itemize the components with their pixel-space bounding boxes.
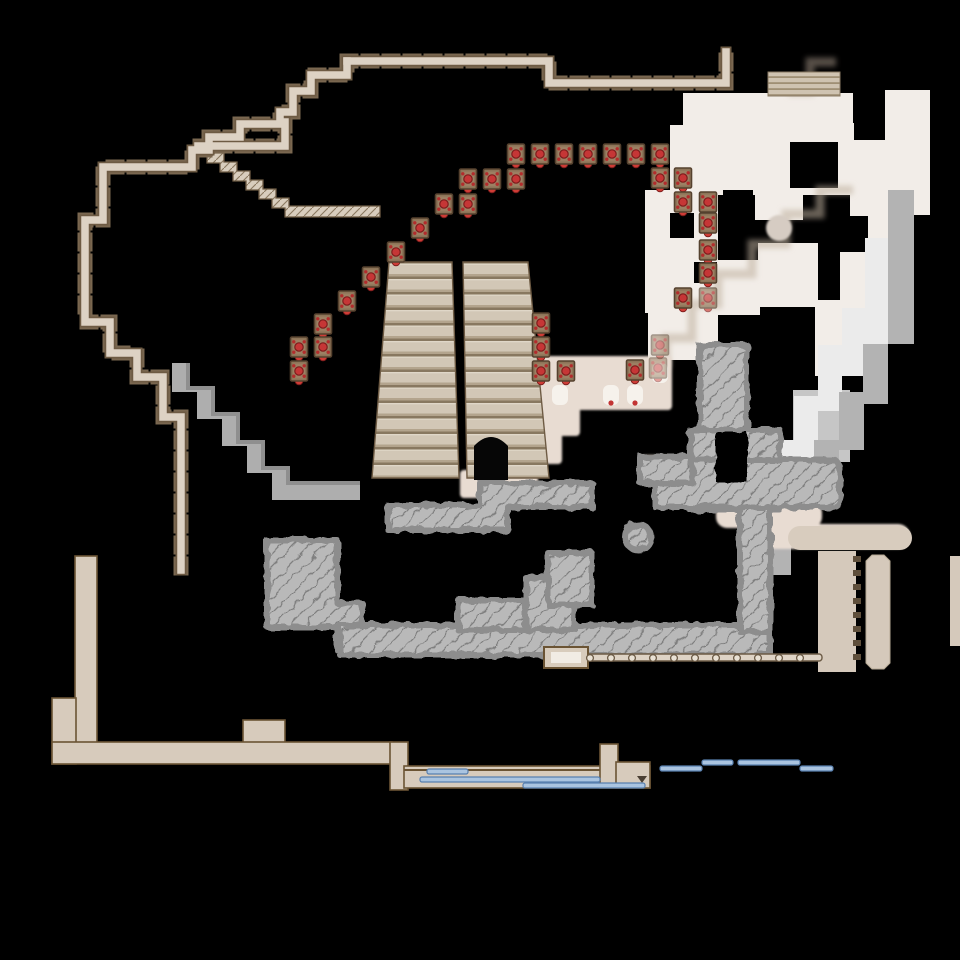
chair-token[interactable] [460, 169, 477, 193]
diagonal-hatched-stair [198, 144, 380, 217]
chair-token[interactable] [556, 144, 573, 168]
chair-token[interactable] [628, 144, 645, 168]
water-segment [420, 777, 600, 782]
fence-bead [776, 655, 783, 662]
fence-rail [584, 654, 822, 661]
fence-bead [671, 655, 678, 662]
chair-token[interactable] [533, 361, 550, 385]
chair-token[interactable] [652, 335, 669, 359]
chair-token[interactable] [388, 242, 405, 266]
water-segment [738, 760, 800, 765]
chair-token[interactable] [363, 267, 380, 291]
fence-bead [650, 655, 657, 662]
chair-token[interactable] [675, 288, 692, 312]
seat-cushion-dot [608, 400, 613, 405]
chair-token[interactable] [412, 218, 429, 242]
round-end-bar [788, 526, 912, 550]
chair-token[interactable] [315, 314, 332, 338]
gray-stepped-walkway [172, 363, 360, 500]
map-edge-sliver [950, 556, 960, 646]
chair-token[interactable] [460, 194, 477, 218]
fence-sign-panel [551, 652, 581, 663]
chair-token[interactable] [532, 144, 549, 168]
toothed-wall-column [818, 551, 856, 672]
chair-token[interactable] [533, 313, 550, 337]
fence-bead [629, 655, 636, 662]
chair-token[interactable] [652, 168, 669, 192]
water-segment [702, 760, 733, 765]
grand-staircase [372, 262, 549, 478]
chair-token[interactable] [533, 337, 550, 361]
chair-token[interactable] [580, 144, 597, 168]
water-segment [800, 766, 833, 771]
chair-token[interactable] [291, 337, 308, 361]
water-segment [660, 766, 702, 771]
fence-bead [608, 655, 615, 662]
mini-stairs-northeast [768, 72, 840, 96]
chair-token[interactable] [650, 358, 667, 382]
water-segment [427, 769, 468, 774]
fence-bead [713, 655, 720, 662]
fence-bead [587, 655, 594, 662]
chair-token[interactable] [700, 263, 717, 287]
fence-bead [755, 655, 762, 662]
chair-token[interactable] [508, 144, 525, 168]
staircase-arch-doorway [474, 437, 508, 480]
chair-token[interactable] [291, 361, 308, 385]
chair-token[interactable] [627, 360, 644, 384]
southeast-structures [788, 526, 960, 672]
chair-token[interactable] [315, 337, 332, 361]
bevel-column [866, 555, 890, 669]
chair-token[interactable] [675, 192, 692, 216]
chair-token[interactable] [652, 144, 669, 168]
chair-token[interactable] [700, 288, 717, 312]
fence-bead [692, 655, 699, 662]
seat-cushion-dot [632, 400, 637, 405]
water-segment [523, 783, 645, 788]
chair-token[interactable] [339, 291, 356, 315]
fence-bead [734, 655, 741, 662]
map-viewport [0, 0, 960, 960]
chair-token[interactable] [558, 361, 575, 385]
chair-token[interactable] [508, 169, 525, 193]
chair-token[interactable] [700, 240, 717, 264]
chair-token[interactable] [484, 169, 501, 193]
fence-bead [797, 655, 804, 662]
chair-token[interactable] [436, 194, 453, 218]
chair-token[interactable] [700, 213, 717, 237]
map-canvas [0, 0, 960, 960]
chair-token[interactable] [675, 168, 692, 192]
round-rock [766, 215, 792, 241]
grand-staircase-left-flight [372, 262, 459, 478]
chair-token[interactable] [604, 144, 621, 168]
